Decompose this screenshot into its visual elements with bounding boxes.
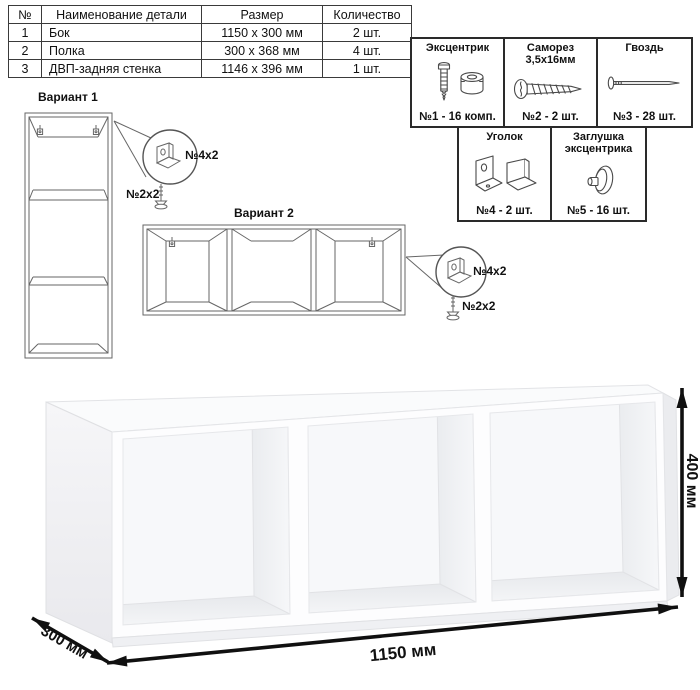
- part-num: 3: [9, 60, 42, 78]
- part-num: 2: [9, 42, 42, 60]
- col-header-size: Размер: [202, 6, 323, 24]
- part-size: 1146 x 396 мм: [202, 60, 323, 78]
- shelf-unit: [46, 384, 679, 647]
- parts-table: № Наименование детали Размер Количество …: [8, 5, 412, 78]
- variant1-screw-label: №2x2: [126, 187, 159, 201]
- part-qty: 1 шт.: [323, 60, 412, 78]
- shelf-3d-render: 1150 мм 400 мм 300 мм: [0, 375, 700, 690]
- part-qty: 2 шт.: [323, 24, 412, 42]
- part-size: 1150 x 300 мм: [202, 24, 323, 42]
- hardware-item-title: Гвоздь: [625, 42, 663, 54]
- part-qty: 4 шт.: [323, 42, 412, 60]
- part-name: Полка: [42, 42, 202, 60]
- col-header-qty: Количество: [323, 6, 412, 24]
- hardware-item-title: Саморез 3,5х16мм: [505, 42, 596, 67]
- table-row: 3 ДВП-задняя стенка 1146 x 396 мм 1 шт.: [9, 60, 412, 78]
- variant1-bracket-label: №4x2: [185, 148, 218, 162]
- table-row: 2 Полка 300 x 368 мм 4 шт.: [9, 42, 412, 60]
- parts-table-header-row: № Наименование детали Размер Количество: [9, 6, 412, 24]
- variant-drawings: [0, 85, 700, 375]
- part-size: 300 x 368 мм: [202, 42, 323, 60]
- part-name: Бок: [42, 24, 202, 42]
- variant2-screw-label: №2x2: [462, 299, 495, 313]
- col-header-name: Наименование детали: [42, 6, 202, 24]
- variant1-drawing: [25, 113, 112, 358]
- variant2-drawing: [143, 225, 405, 315]
- assembly-instruction-sheet: № Наименование детали Размер Количество …: [0, 0, 700, 690]
- col-header-num: №: [9, 6, 42, 24]
- height-dimension-arrow: 400 мм: [677, 388, 700, 597]
- part-name: ДВП-задняя стенка: [42, 60, 202, 78]
- screw-icon: [447, 295, 459, 320]
- hardware-item-title: Эксцентрик: [426, 42, 489, 54]
- height-dimension-label: 400 мм: [683, 454, 700, 509]
- part-num: 1: [9, 24, 42, 42]
- variant2-bracket-label: №4x2: [473, 264, 506, 278]
- table-row: 1 Бок 1150 x 300 мм 2 шт.: [9, 24, 412, 42]
- width-dimension-label: 1150 мм: [369, 640, 437, 665]
